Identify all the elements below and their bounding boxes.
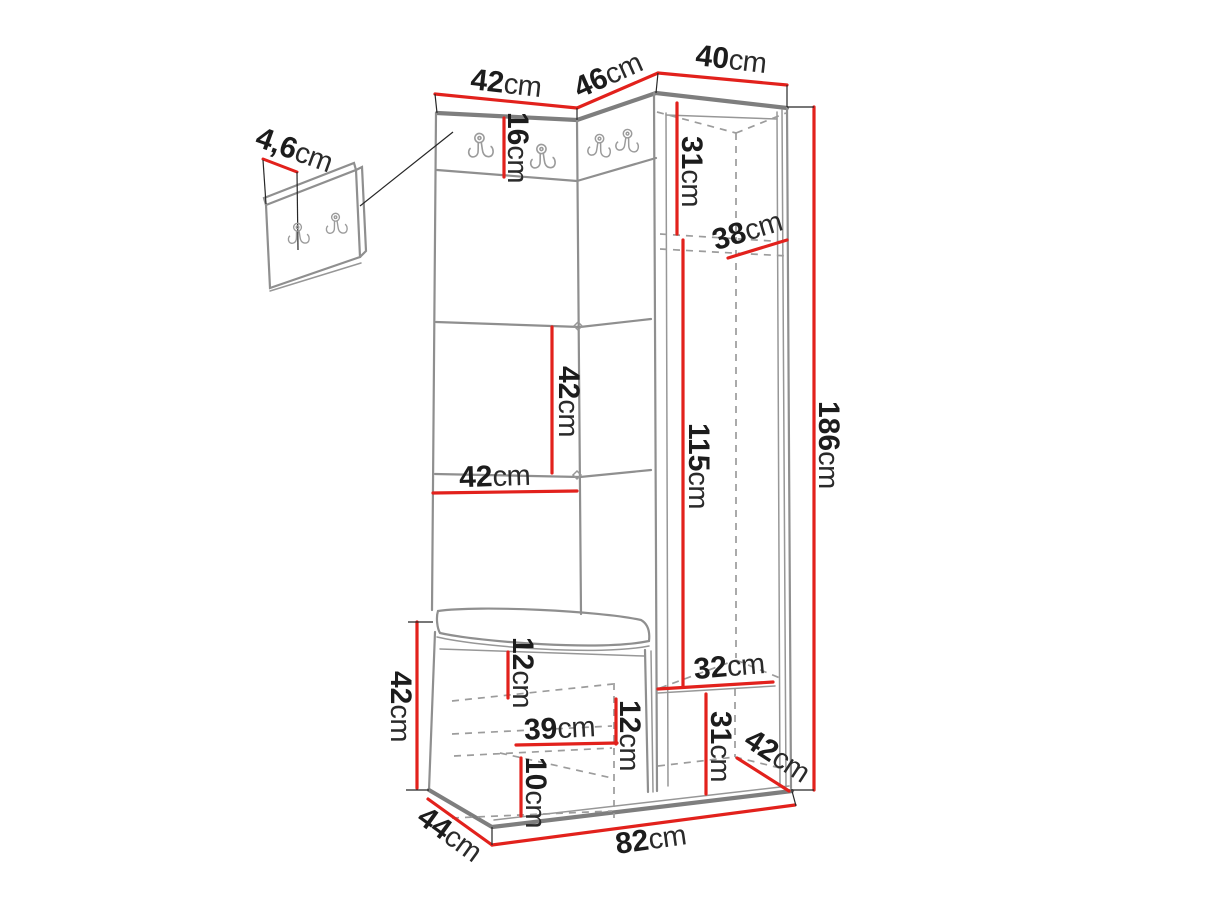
dimension-labels: 42cm 46cm 40cm 4,6cm 16cm 31cm 38cm 186c… [251,39,845,868]
dimension-diagram: 42cm 46cm 40cm 4,6cm 16cm 31cm 38cm 186c… [0,0,1214,911]
bench-wardrobe-gap-line [651,651,653,792]
dim-bench-depth: 44cm [411,800,488,868]
cushion-division-1 [436,319,651,327]
bench-seat-cushion [437,609,649,646]
dim-hanging-section-height: 115cm [682,423,715,509]
dim-wardrobe-top-section-height: 31cm [675,136,708,207]
dim-bench-bottom-shelf-height: 10cm [519,757,552,828]
coat-hook-icon [588,134,612,157]
dim-wardrobe-width: 40cm [694,39,768,80]
dim-wardrobe-bottom-section-height: 31cm [704,711,737,782]
dim-wardrobe-bottom-depth: 42cm [738,723,816,789]
detail-pointer-line [360,132,453,206]
hook-panel-bottom-thickness [270,263,361,291]
coat-hooks [287,129,639,245]
wardrobe-left-stile-outer [654,93,657,791]
coat-hook-icon [467,133,493,158]
left-panel-left-edge [432,113,436,610]
hook-panel-front [266,170,360,288]
dim-unit-base-width: 82cm [613,818,688,861]
hook-rail-bottom-corner [577,158,656,181]
bench-shelf-depth-line [500,753,612,778]
diagram-canvas: 42cm 46cm 40cm 4,6cm 16cm 31cm 38cm 186c… [0,0,1214,911]
dim-hook-rail-height: 16cm [501,112,534,183]
dim-total-height: 186cm [812,401,845,489]
dim-cushion-panel-width: 42cm [459,459,531,494]
bench-shelf-mid-front [454,748,612,756]
dim-cushion-panel-height: 42cm [552,366,585,437]
dim-bench-shelf-spacing: 12cm [613,700,646,771]
extension-line [435,94,437,113]
dim-bench-height: 42cm [384,671,417,742]
wardrobe-right-edge-outer [787,108,791,788]
dim-bench-top-clearance: 12cm [506,637,539,708]
dim-bench-shelf-width: 39cm [523,710,596,747]
wardrobe-right-edge-double [782,110,786,787]
extension-line [656,73,658,93]
dim-wardrobe-interior-width: 32cm [692,647,766,686]
wardrobe-top-back-right [736,113,786,133]
coat-hook-icon [325,213,347,235]
dim-wardrobe-depth: 38cm [708,205,786,257]
coat-hook-icon [616,129,640,152]
base-front-edge [429,790,792,827]
bench-left-edge [429,632,435,790]
